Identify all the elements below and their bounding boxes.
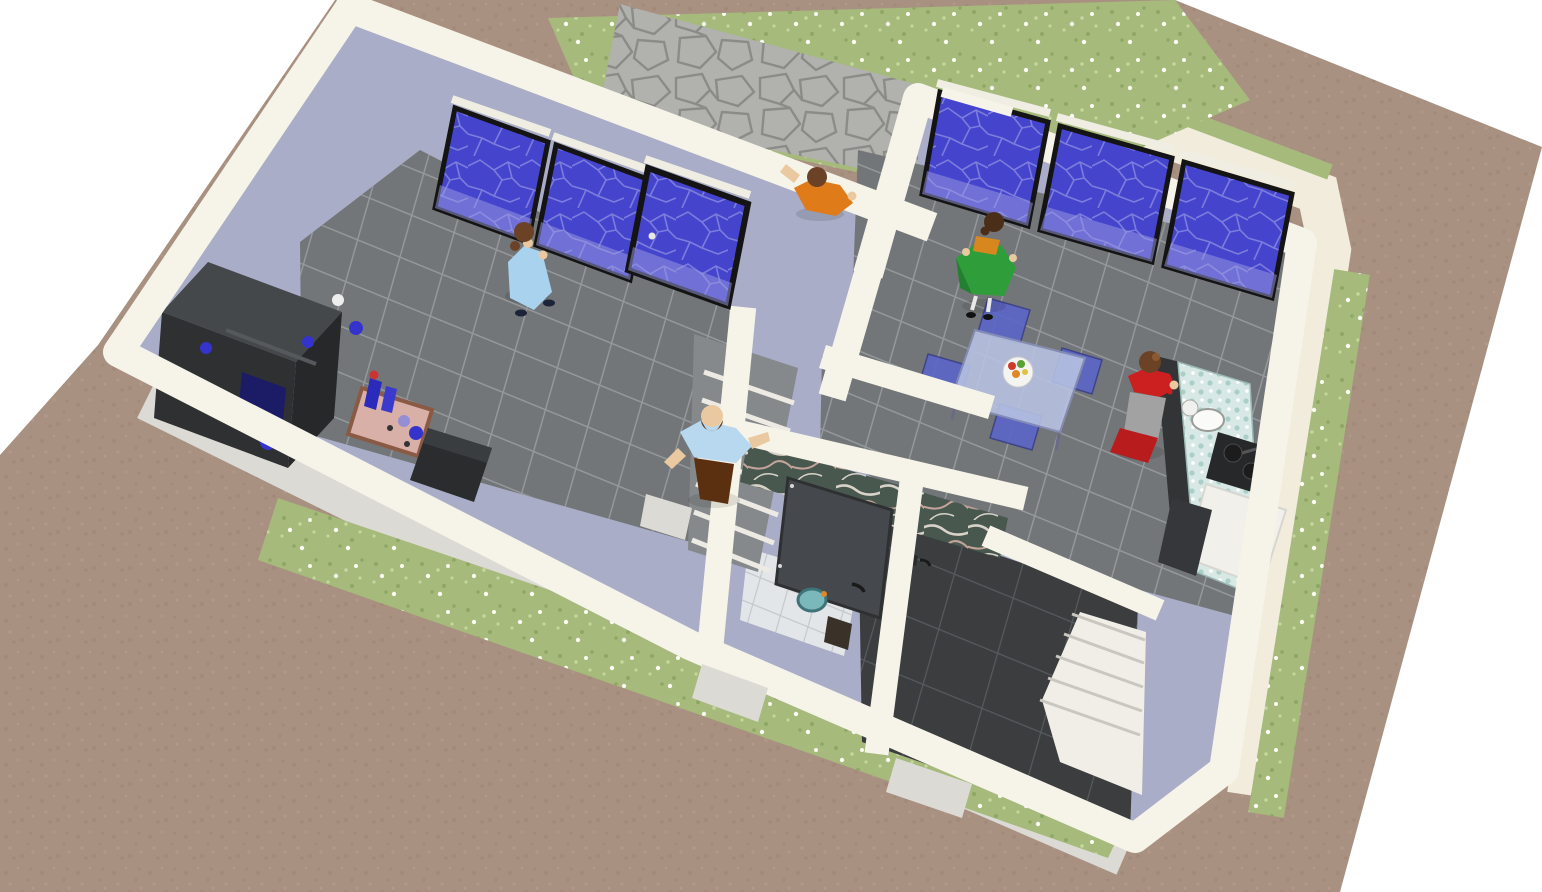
hair-bun [981,227,990,236]
render-viewport: Aerial dollhouse view of a one-story hou… [0,0,1542,892]
arm [1009,254,1017,262]
arm [539,251,548,260]
unit-knob [332,294,344,306]
leg [988,298,990,312]
shoe [543,300,555,307]
house-3d-scene: Aerial dollhouse view of a one-story hou… [0,0,1542,892]
hair [807,167,827,187]
ponytail [510,241,520,251]
hair [514,222,534,242]
arm [962,248,970,256]
door-handle-dot [649,233,656,240]
bald-head [701,405,723,427]
shoe [983,314,993,320]
bracelet [1168,390,1173,395]
trousers [694,458,734,504]
shoe [515,310,527,317]
arm [1170,381,1179,390]
hand [848,192,857,201]
bathroom-sink[interactable]: Round teal bathroom basin [798,589,827,611]
stove-pan [1224,444,1242,462]
shoe [966,312,976,318]
bottle-cap [370,371,379,380]
hair-highlight [1152,353,1160,361]
